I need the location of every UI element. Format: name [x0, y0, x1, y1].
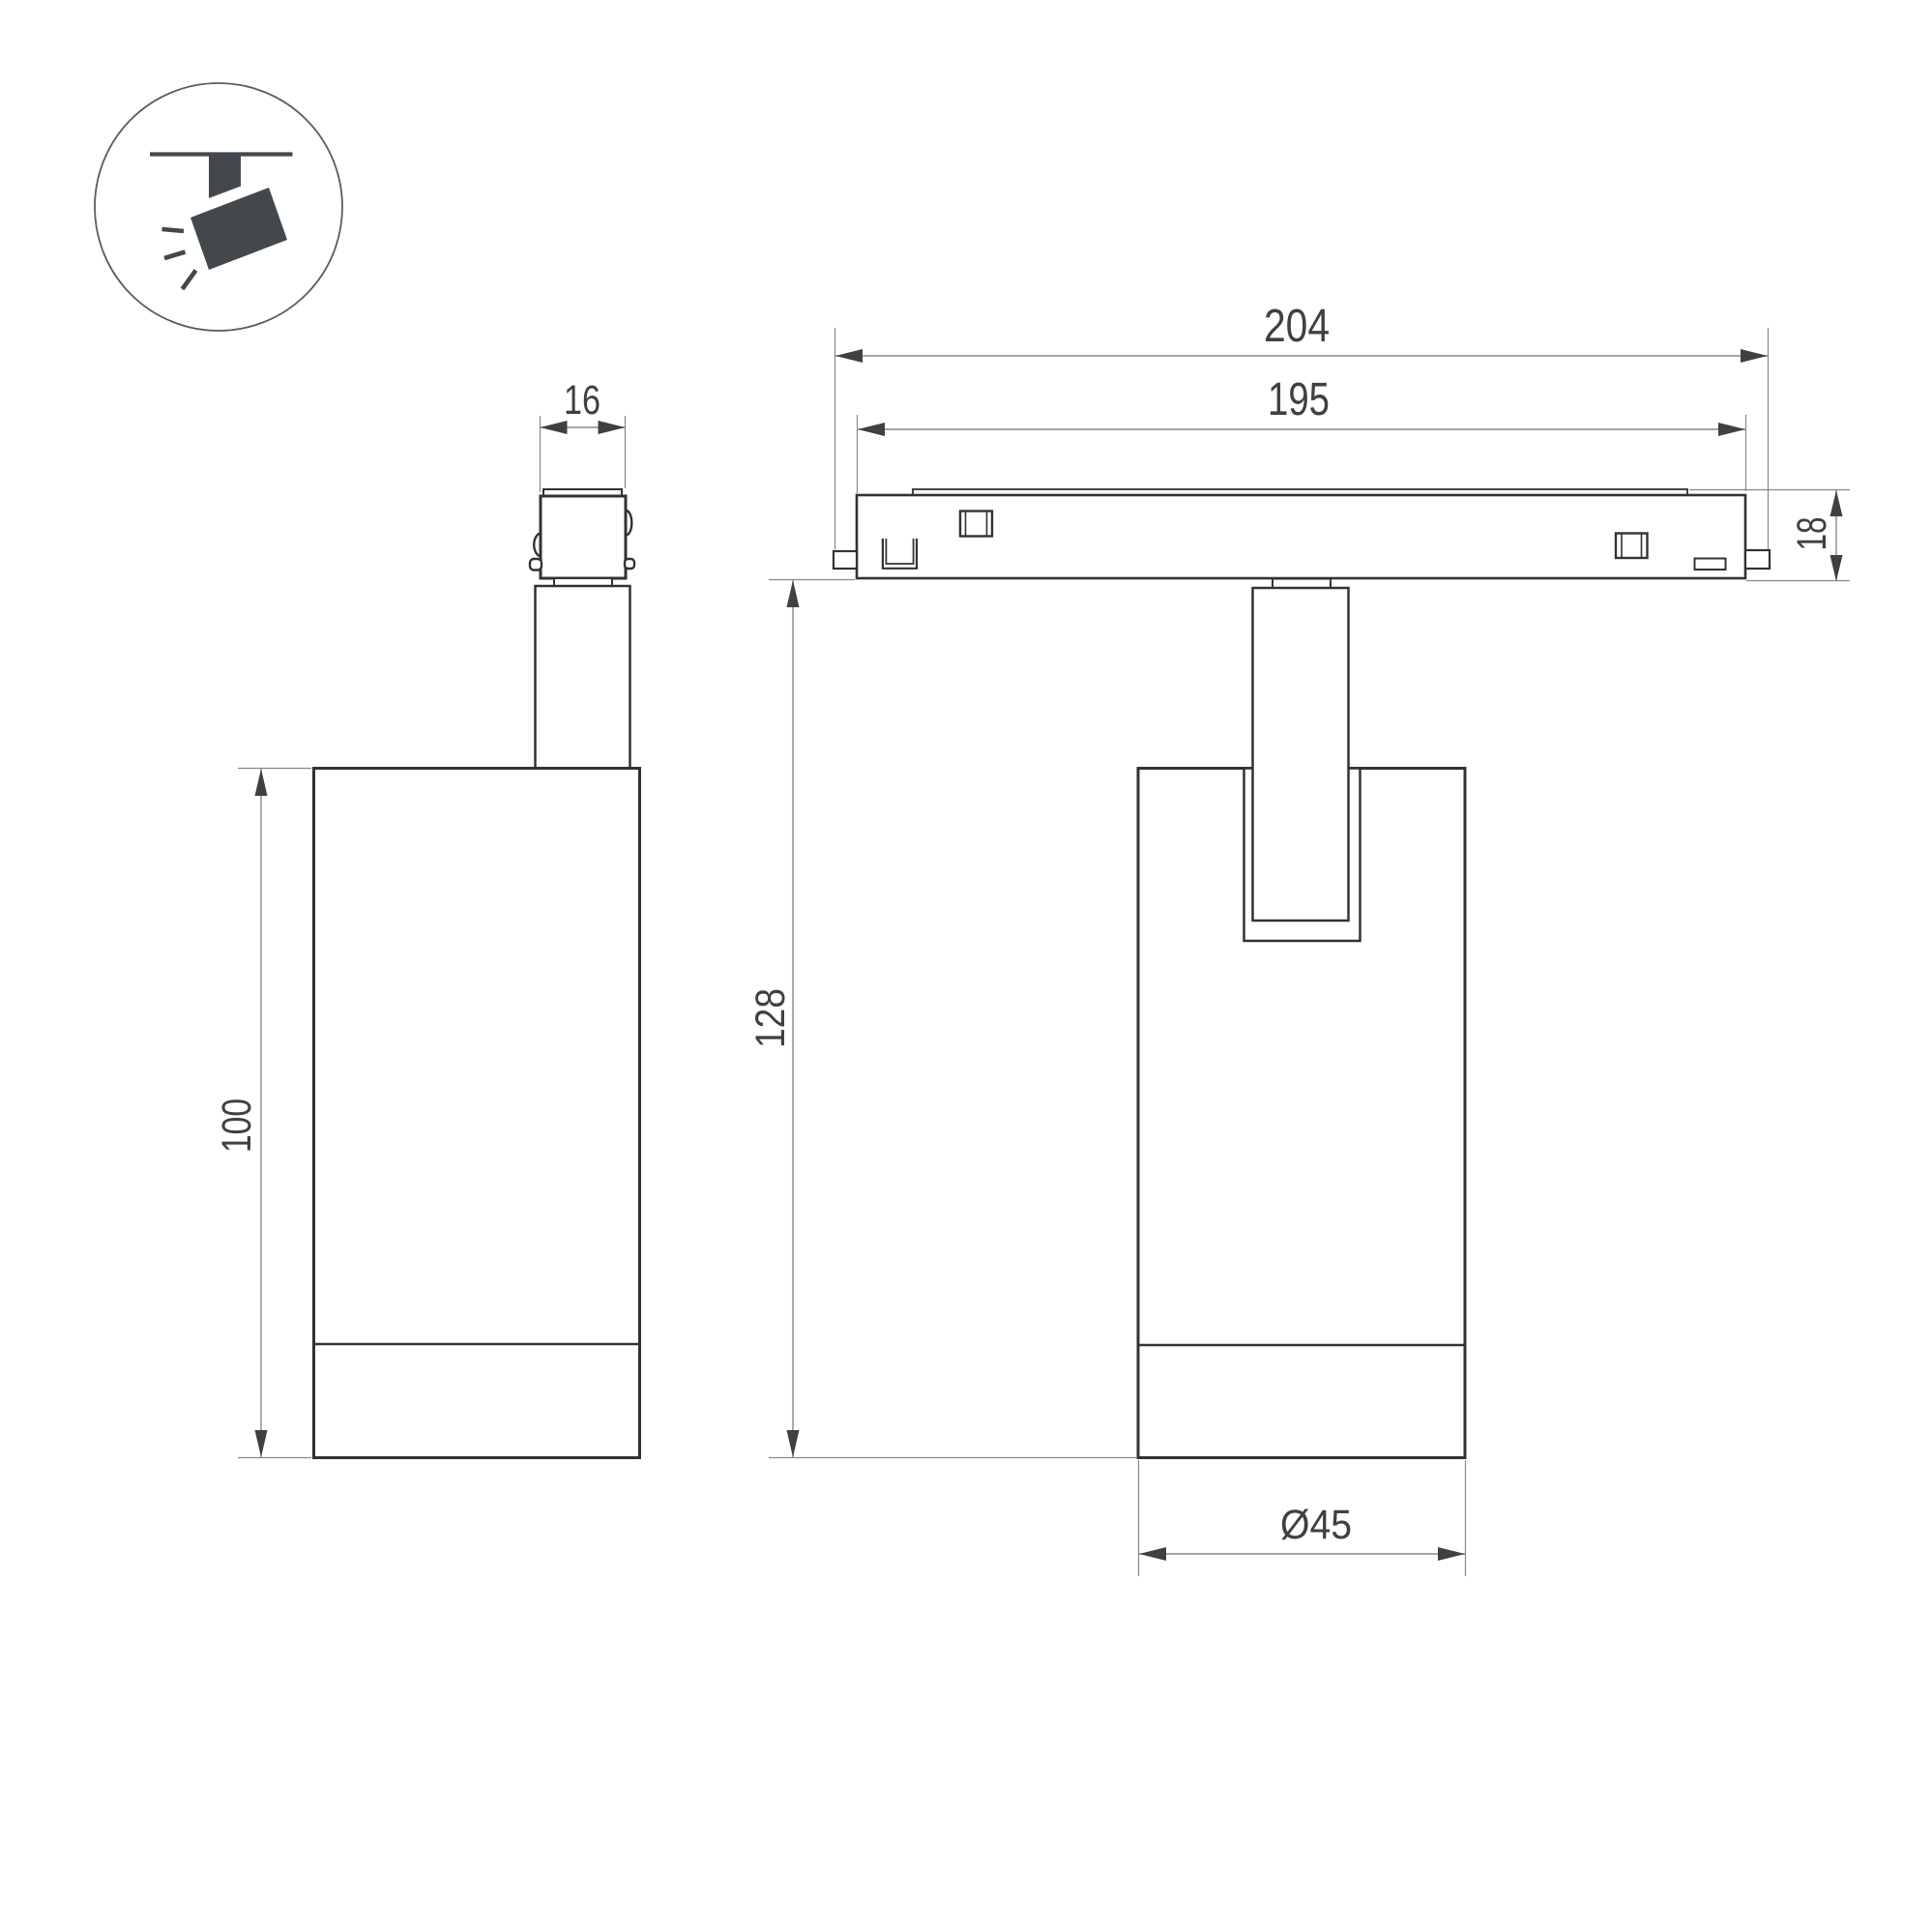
svg-text:204: 204 — [1264, 301, 1330, 352]
svg-text:195: 195 — [1268, 374, 1330, 425]
svg-text:128: 128 — [747, 988, 794, 1048]
svg-text:Ø45: Ø45 — [1280, 1502, 1352, 1548]
svg-text:100: 100 — [214, 1098, 260, 1153]
svg-text:16: 16 — [564, 377, 600, 424]
svg-text:18: 18 — [1789, 517, 1835, 551]
